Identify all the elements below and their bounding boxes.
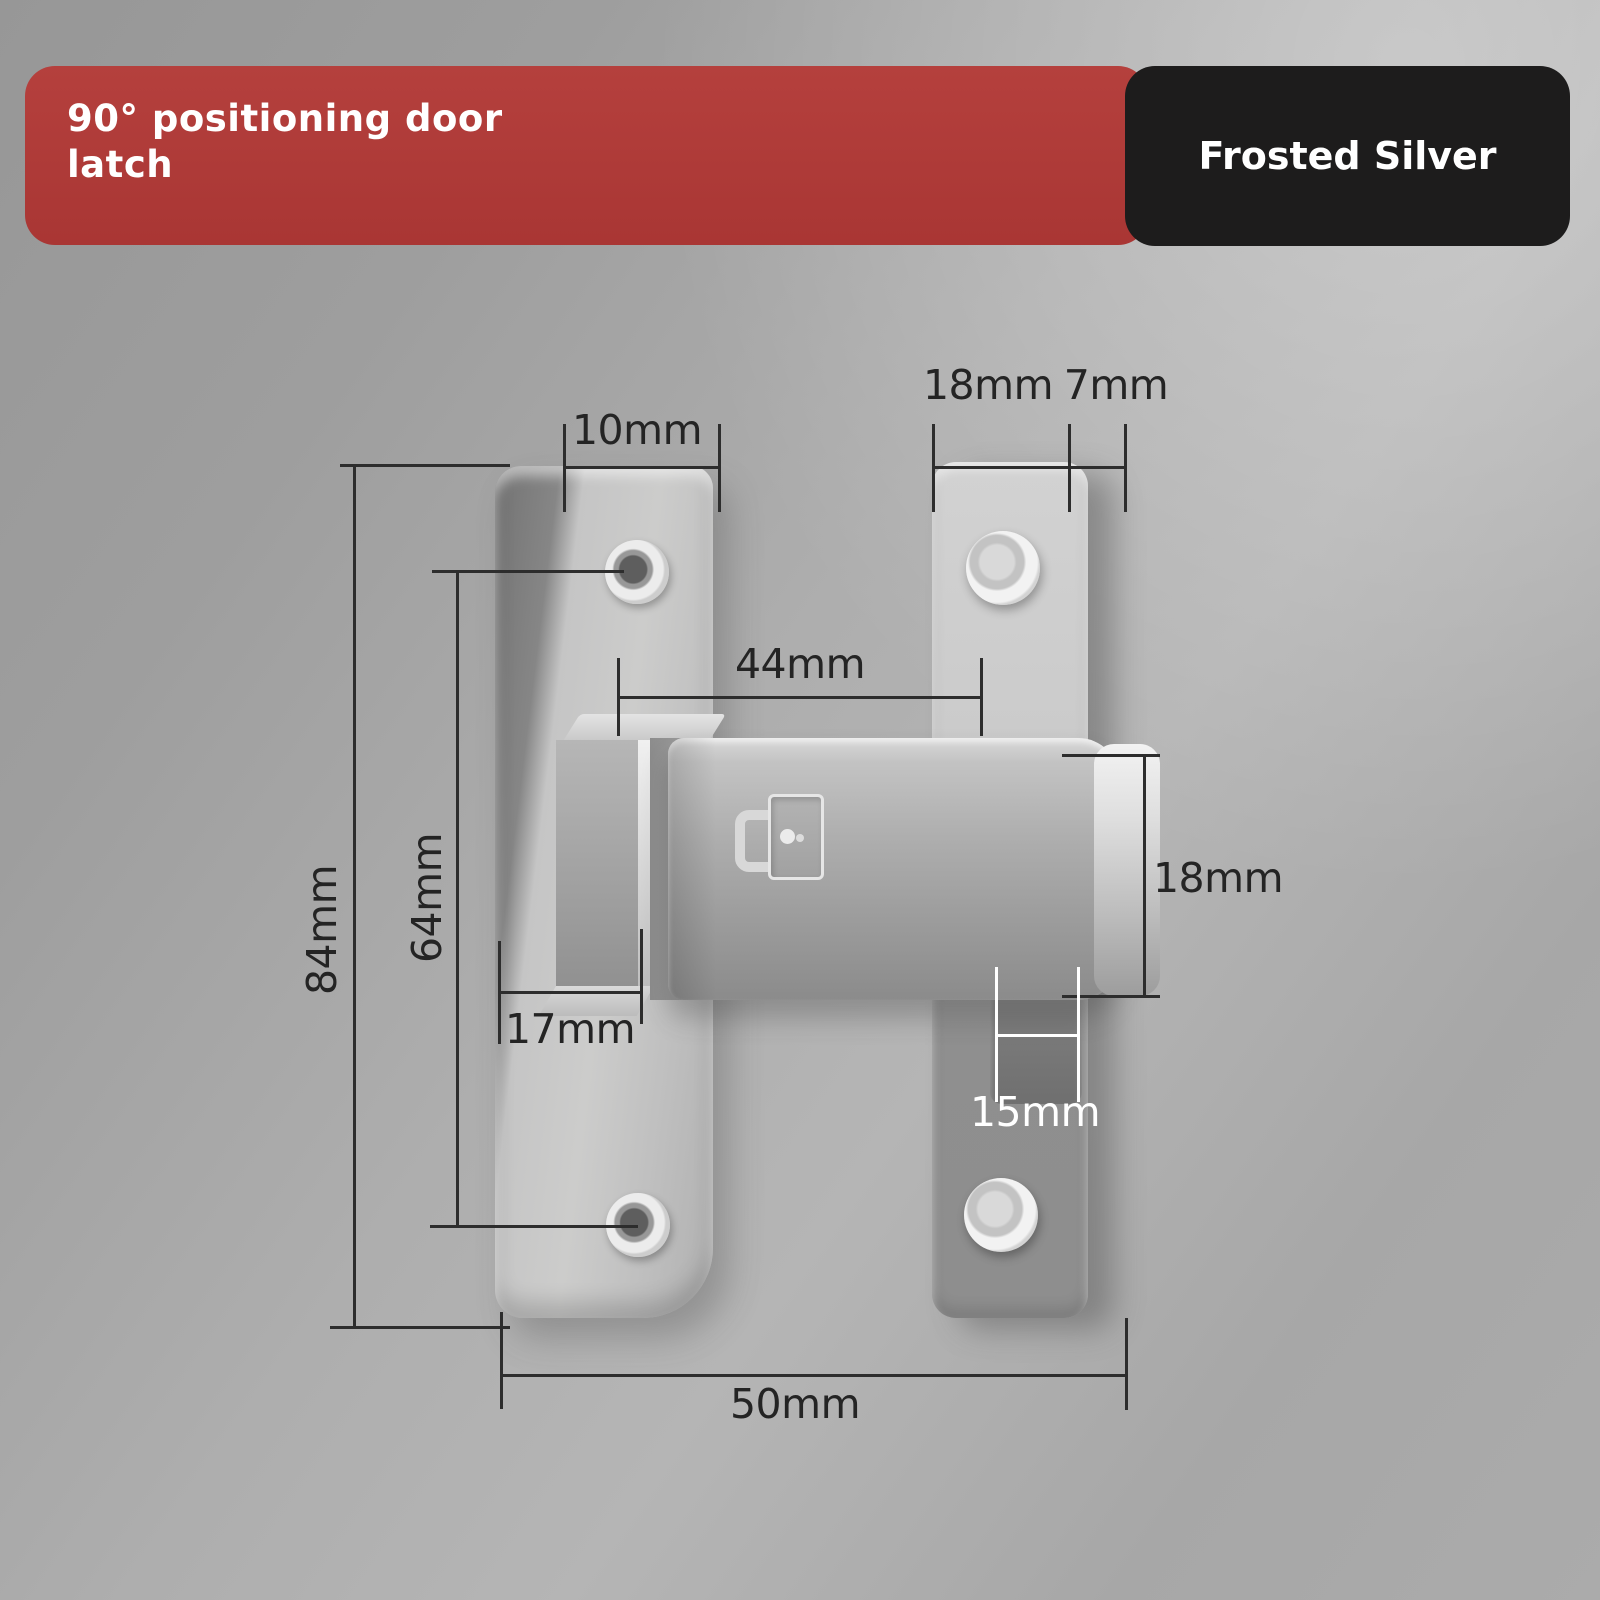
latch-bar [668,738,1120,1000]
dim-84mm-ext-bottom [330,1326,510,1329]
dim-15mm-tick-right [1077,967,1080,1102]
dim-18-7mm-line [933,466,1126,469]
dim-18mm-bar-line [1143,755,1146,998]
latch-illustration [0,0,1600,1600]
dim-18mm-tick-left [932,424,935,512]
dim-label-overall-width: 50mm [730,1380,860,1428]
dim-18mm-bar-ext-top [1062,754,1160,757]
dim-64mm-line [456,571,459,1228]
dim-18mm-tick-middle [1068,424,1071,512]
dim-17mm-tick-left [498,941,501,1044]
dim-44mm-tick-left [617,658,620,736]
dim-10mm-tick-right [718,424,721,512]
dim-10mm-tick-left [563,424,566,512]
dim-50mm-line [501,1374,1127,1377]
dim-label-latch-bar-height: 18mm [1153,854,1283,902]
dim-label-right-plate-width: 18mm [923,361,1053,409]
dim-10mm-line [564,466,719,469]
pivot-base [556,740,642,990]
product-dimension-image: 90° positioning door latch (Precision ca… [0,0,1600,1600]
lock-emblem-pin [780,829,795,844]
dim-7mm-tick-right [1124,424,1127,512]
lock-emblem-pin-tip [796,834,804,842]
dim-50mm-tick-right [1125,1318,1128,1410]
dim-50mm-tick-left [500,1312,503,1409]
dim-label-hole-span-horizontal: 44mm [735,640,865,688]
dim-64mm-ext-top [432,570,624,573]
dim-84mm-ext-top [340,464,510,467]
dim-64mm-ext-bottom [430,1225,638,1228]
screw-hole-right-bottom [964,1178,1038,1252]
latch-bar-end-highlight [1094,744,1160,996]
dim-label-right-plate-thickness: 7mm [1064,361,1168,409]
dim-44mm-line [618,696,982,699]
dim-17mm-tick-right [640,929,643,1024]
screw-hole-right-top [966,531,1040,605]
dim-label-plate-height: 84mm [298,865,346,995]
dim-label-catch-block-width: 15mm [970,1088,1100,1136]
dim-84mm-line [353,465,356,1328]
dim-15mm-tick-left [995,967,998,1102]
dim-44mm-tick-right [980,658,983,736]
dim-17mm-line [499,991,642,994]
dim-label-pivot-base-width: 17mm [505,1005,635,1053]
dim-label-hole-span-vertical: 64mm [403,833,451,963]
dim-label-left-plate-top-width: 10mm [572,406,702,454]
dim-15mm-line [996,1034,1080,1037]
